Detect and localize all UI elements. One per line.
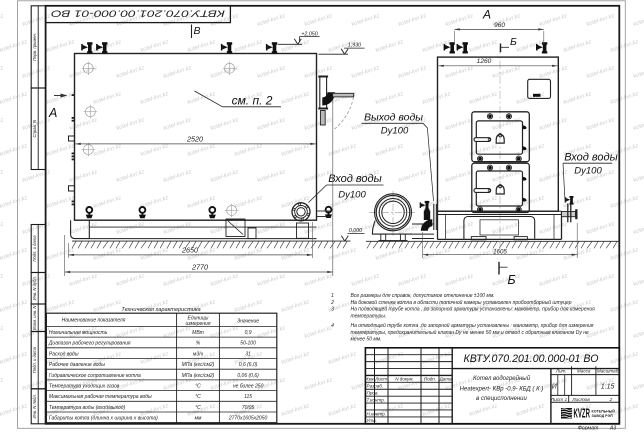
svg-text:2770: 2770 (191, 263, 208, 272)
svg-text:50-100: 50-100 (240, 341, 256, 347)
svg-text:960: 960 (494, 22, 505, 29)
svg-text:ЗАВОД РЭП: ЗАВОД РЭП (592, 414, 614, 418)
svg-text:Дата: Дата (438, 377, 452, 382)
svg-text:Температура воды (вход/выход): Температура воды (вход/выход) (49, 405, 126, 411)
svg-text:Heatexpert- КВр -0,9- КБД ( К: Heatexpert- КВр -0,9- КБД ( К ) (460, 386, 544, 392)
svg-text:Значение: Значение (237, 319, 259, 325)
svg-text:МПа (кгс/см2): МПа (кгс/см2) (182, 362, 215, 368)
svg-text:N докум.: N докум. (395, 377, 414, 382)
svg-text:2650: 2650 (181, 245, 198, 254)
svg-text:МВт: МВт (192, 330, 204, 336)
svg-text:измерения: измерения (185, 321, 210, 327)
svg-text:Вход воды: Вход воды (328, 173, 381, 185)
svg-text:Все размеры для справок, допус: Все размеры для справок, допустимое откл… (351, 293, 495, 299)
svg-text:1:15: 1:15 (601, 384, 615, 391)
svg-text:1260: 1260 (477, 58, 492, 65)
svg-text:Масса: Масса (577, 369, 591, 374)
svg-text:Пров.: Пров. (367, 391, 379, 396)
svg-text:На подводящей трубе котла ,: На подводящей трубе котла , до запорной … (351, 306, 596, 313)
svg-text:2: 2 (330, 300, 334, 306)
svg-text:Наименование показателя: Наименование показателя (62, 318, 126, 324)
svg-text:Б: Б (508, 273, 516, 287)
svg-text:температуры.: температуры. (351, 313, 387, 319)
svg-text:менее 50 мм.: менее 50 мм. (351, 337, 382, 343)
svg-text:Номинальная мощность: Номинальная мощность (49, 330, 108, 336)
svg-text:Формат: Формат (578, 425, 599, 430)
svg-text:31: 31 (245, 351, 251, 357)
svg-text:А: А (48, 106, 57, 120)
svg-text:На боковой стенке котла в обла: На боковой стенке котла в области топочн… (351, 299, 572, 306)
svg-text:4: 4 (331, 323, 334, 329)
svg-text:Утв.: Утв. (367, 418, 377, 423)
svg-text:1605: 1605 (493, 249, 507, 256)
svg-text:Подп. и дата: Подп. и дата (32, 346, 37, 373)
svg-text:0,06 (0,6): 0,06 (0,6) (237, 373, 259, 379)
svg-text:0,9: 0,9 (245, 330, 252, 336)
svg-text:%: % (196, 341, 201, 347)
svg-text:см. п. 2: см. п. 2 (232, 94, 273, 108)
svg-text:Dy100: Dy100 (338, 190, 366, 201)
svg-text:Габариты котла (длинна х ширин: Габариты котла (длинна х ширина х высота… (49, 416, 158, 422)
svg-text:Температура уходящих газов: Температура уходящих газов (49, 384, 120, 390)
svg-text:Подп.: Подп. (424, 377, 436, 382)
svg-text:м3/ч: м3/ч (193, 351, 204, 357)
svg-text:Листов: Листов (571, 397, 590, 403)
svg-text:2: 2 (609, 397, 613, 403)
svg-text:2770х1605х2050: 2770х1605х2050 (228, 416, 268, 422)
svg-text:Лист: Лист (374, 377, 387, 382)
svg-text:А: А (482, 8, 491, 22)
svg-text:Взам. инв. N: Взам. инв. N (32, 305, 37, 330)
svg-text:А3: А3 (609, 425, 616, 430)
svg-text:70/95: 70/95 (242, 405, 255, 411)
svg-text:Гидравлическое сопротивление к: Гидравлическое сопротивление котла (49, 373, 141, 379)
svg-text:Справ. N: Справ. N (32, 119, 37, 137)
svg-text:Dy100: Dy100 (574, 165, 602, 176)
svg-text:Подп. и дата: Подп. и дата (32, 235, 37, 262)
svg-text:Котел водогрейный: Котел водогрейный (473, 375, 531, 382)
svg-text:Т.контр.: Т.контр. (367, 397, 386, 402)
svg-text:Изм.: Изм. (365, 377, 375, 382)
svg-text:1: 1 (331, 293, 334, 299)
svg-text:Лит.: Лит. (555, 369, 567, 374)
svg-text:1: 1 (564, 397, 567, 403)
svg-text:Вход воды: Вход воды (564, 152, 617, 164)
svg-text:115: 115 (244, 394, 252, 400)
svg-text:Б: Б (510, 36, 517, 48)
svg-text:Максимальная рабочая температу: Максимальная рабочая температура воды (49, 394, 152, 400)
svg-text:Техническая характеристика: Техническая характеристика (121, 307, 200, 313)
svg-text:°С: °С (195, 405, 201, 411)
svg-text:0.000: 0.000 (349, 228, 362, 234)
svg-text:3: 3 (331, 307, 334, 313)
svg-text:Рабочее давление воды: Рабочее давление воды (49, 362, 105, 368)
svg-text:Диапазон рабочего регулировани: Диапазон рабочего регулирования (48, 341, 131, 347)
svg-text:не более 250: не более 250 (233, 384, 264, 390)
svg-text:Выход воды: Выход воды (364, 112, 423, 124)
svg-text:температуры, предохранительный: температуры, предохранительный клапан Dy… (351, 329, 589, 336)
svg-text:0,6 (6,0): 0,6 (6,0) (239, 362, 258, 368)
svg-text:Инв. N подл.: Инв. N подл. (32, 394, 37, 418)
svg-text:КВТУ.070.201.00.000-01 ВО: КВТУ.070.201.00.000-01 ВО (50, 9, 225, 20)
svg-text:Инв. N дубл.: Инв. N дубл. (32, 276, 37, 300)
svg-text:KVZR: KVZR (574, 407, 591, 421)
svg-text:Разраб.: Разраб. (367, 384, 384, 389)
svg-text:В: В (194, 25, 201, 37)
svg-text:мм: мм (195, 416, 202, 422)
svg-text:МПа (кгс/см2): МПа (кгс/см2) (182, 373, 215, 379)
svg-text:КВТУ.070.201.00.000-01 ВО: КВТУ.070.201.00.000-01 ВО (464, 353, 599, 365)
svg-text:Лист: Лист (550, 397, 563, 403)
svg-text:КОТЕЛЬНЫЙ: КОТЕЛЬНЫЙ (592, 409, 616, 413)
svg-text:Dy100: Dy100 (381, 126, 409, 137)
svg-text:°С: °С (195, 384, 201, 390)
svg-text:в специсполнении: в специсполнении (476, 396, 527, 402)
svg-text:На отводящей трубе котла ,до з: На отводящей трубе котла ,до запорной ар… (351, 322, 594, 329)
svg-text:Масштаб: Масштаб (597, 369, 619, 374)
svg-text:2520: 2520 (186, 134, 203, 143)
svg-text:°С: °С (195, 394, 201, 400)
svg-text:Н.контр.: Н.контр. (367, 411, 386, 416)
svg-text:Перв. примен.: Перв. примен. (32, 33, 37, 61)
svg-text:Расход воды: Расход воды (49, 351, 79, 357)
